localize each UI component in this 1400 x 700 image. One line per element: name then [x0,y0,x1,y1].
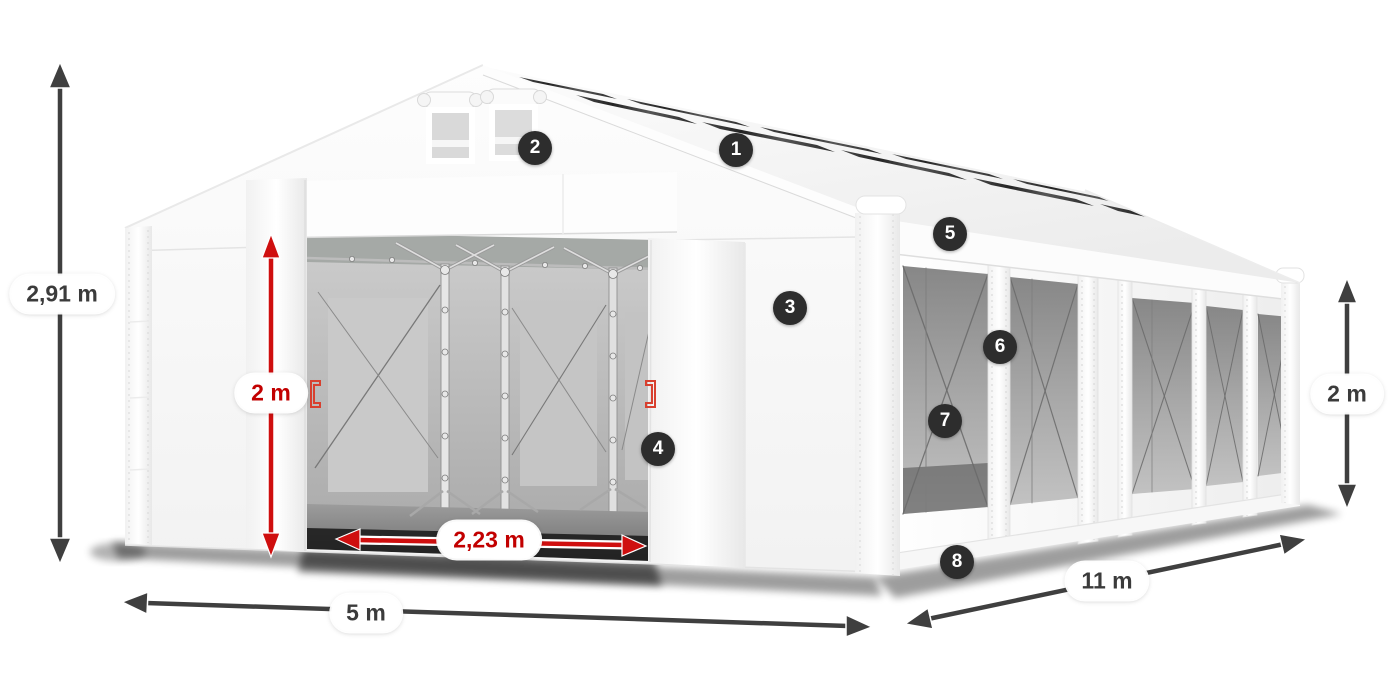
door-leaf-right [646,238,745,568]
door-opening-interior [307,233,658,561]
tent-dimension-diagram: 2,91 m 2 m 2,23 m 5 m 11 m 2 m 1 2 3 4 5… [0,0,1400,700]
front-eave-cap [856,196,906,214]
callout-4[interactable]: 4 [641,432,675,466]
arrow-total-height [49,62,71,564]
dimension-label-side-length: 11 m [1066,563,1147,600]
callout-7[interactable]: 7 [928,404,962,438]
front-right-corner-post [855,196,906,576]
callout-1[interactable]: 1 [719,133,753,167]
callout-3[interactable]: 3 [773,291,807,325]
door-header-panel [263,172,677,238]
callout-5[interactable]: 5 [933,217,967,251]
callout-6[interactable]: 6 [983,330,1017,364]
dimension-label-door-height: 2 m [236,375,306,412]
dimension-label-front-width: 5 m [331,595,401,632]
callout-8[interactable]: 8 [940,545,974,579]
dimension-label-wall-height: 2 m [1312,376,1382,413]
dimension-label-total-height: 2,91 m [11,276,113,313]
tent-illustration [0,0,1400,700]
rear-corner-roll [1281,278,1300,505]
arrow-front-width [122,592,872,637]
callout-2[interactable]: 2 [518,131,552,165]
dimension-label-door-width: 2,23 m [438,522,540,559]
front-left-corner-roll [125,226,152,545]
